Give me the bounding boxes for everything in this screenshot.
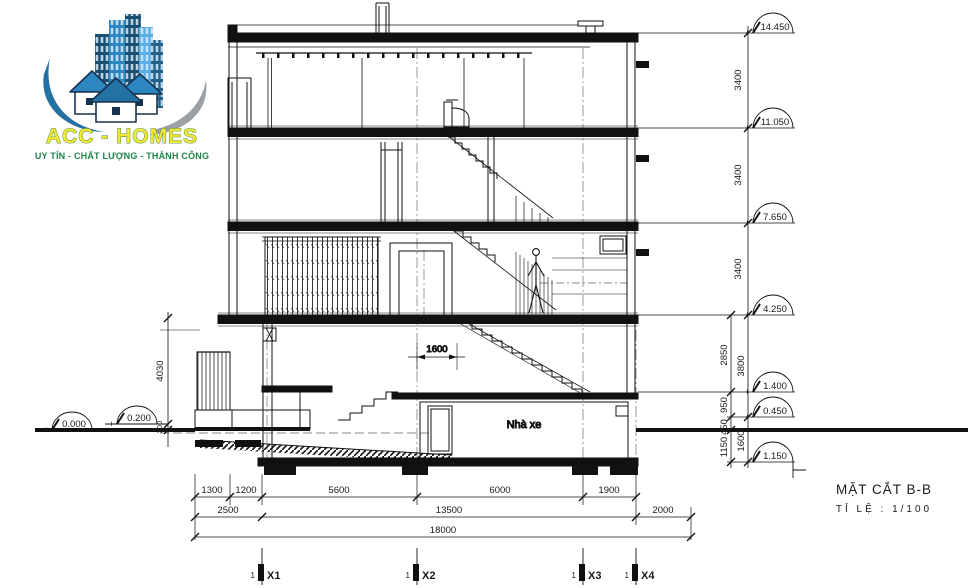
svg-text:1: 1	[251, 571, 256, 580]
svg-text:950: 950	[719, 397, 730, 413]
svg-text:1600: 1600	[736, 430, 747, 451]
svg-text:+: +	[744, 387, 750, 398]
drawing-scale: TỈ LỆ : 1/100	[836, 502, 932, 515]
level-marker: - 1.150	[747, 442, 793, 468]
slogan-text: UY TÍN - CHẤT LƯỢNG - THÀNH CÔNG	[35, 150, 209, 161]
building-section: 1600 Nhà xe	[35, 3, 968, 478]
svg-text:+: +	[744, 412, 750, 423]
logo: ACC - HOMES UY TÍN - CHẤT LƯỢNG - THÀNH …	[35, 14, 209, 161]
axis-label-x1: 1 X1	[251, 570, 281, 582]
svg-text:4.250: 4.250	[763, 304, 787, 315]
axis-label-x2: 1 X2	[406, 570, 436, 582]
axis-label-x4: 1 X4	[625, 570, 656, 582]
drawing-title-block: MẶT CẮT B-B TỈ LỆ : 1/100	[836, 482, 932, 515]
svg-text:6000: 6000	[489, 485, 510, 496]
svg-text:X3: X3	[588, 570, 601, 582]
svg-text:2500: 2500	[217, 505, 238, 516]
level-marker: + 11.050	[744, 108, 793, 134]
svg-text:+: +	[744, 218, 750, 229]
svg-text:1600: 1600	[426, 344, 447, 355]
level-marker: + 1.400	[744, 372, 793, 398]
left-dimension: 4030 200	[155, 312, 200, 447]
svg-text:450: 450	[719, 419, 730, 435]
section-drawing: ACC - HOMES UY TÍN - CHẤT LƯỢNG - THÀNH …	[0, 0, 970, 588]
svg-text:13500: 13500	[436, 505, 462, 516]
svg-text:+: +	[744, 310, 750, 321]
svg-text:X2: X2	[422, 570, 435, 582]
svg-text:2850: 2850	[719, 344, 730, 365]
svg-text:4030: 4030	[155, 360, 166, 381]
svg-text:1900: 1900	[598, 485, 619, 496]
svg-text:11.050: 11.050	[761, 117, 789, 128]
svg-text:14.450: 14.450	[760, 22, 789, 33]
blueprint-page: ACC - HOMES UY TÍN - CHẤT LƯỢNG - THÀNH …	[0, 0, 970, 588]
svg-text:1: 1	[625, 571, 630, 580]
svg-text:3400: 3400	[733, 258, 744, 279]
svg-text:1.400: 1.400	[763, 381, 787, 392]
bottom-dimensions: 1300 1200 5600 6000 1900 2500 13500 2000…	[191, 474, 695, 541]
svg-text:1: 1	[572, 571, 577, 580]
svg-text:0.450: 0.450	[763, 406, 787, 417]
stair-dimension: 1600	[408, 343, 465, 370]
level-marker: + 0.000	[35, 412, 100, 436]
svg-text:3400: 3400	[733, 164, 744, 185]
garage-label: Nhà xe	[507, 419, 542, 431]
brand-text: ACC - HOMES	[46, 125, 198, 148]
svg-text:200: 200	[155, 421, 164, 434]
svg-text:+: +	[744, 123, 750, 134]
axis-label-x3: 1 X3	[572, 570, 602, 582]
svg-text:1150: 1150	[719, 437, 730, 457]
svg-text:18000: 18000	[430, 525, 456, 536]
svg-text:0.200: 0.200	[127, 413, 151, 424]
svg-text:1.150: 1.150	[763, 451, 787, 462]
svg-text:+: +	[43, 425, 49, 436]
level-marker: + 4.250	[744, 295, 793, 321]
svg-text:X1: X1	[267, 570, 280, 582]
svg-text:7.650: 7.650	[763, 212, 787, 223]
level-marker: + 0.450	[744, 397, 793, 423]
svg-text:5600: 5600	[328, 485, 349, 496]
svg-text:1: 1	[406, 571, 411, 580]
svg-text:-: -	[747, 457, 750, 468]
svg-text:2000: 2000	[652, 505, 673, 516]
toilet-icon	[444, 100, 469, 127]
svg-text:3800: 3800	[736, 355, 747, 376]
svg-text:1200: 1200	[235, 485, 256, 496]
drawing-title: MẶT CẮT B-B	[836, 482, 932, 497]
svg-text:X4: X4	[641, 570, 655, 582]
svg-text:3400: 3400	[733, 69, 744, 90]
axis-marks: 1 X1 1 X2 1 X3 1 X4	[251, 548, 656, 585]
level-marker: + 14.450	[744, 13, 793, 39]
right-dimensions: 3400 3400 3400 3800 1600 2850 950 450 11…	[719, 26, 752, 468]
level-marker: + 7.650	[744, 203, 793, 229]
svg-text:+: +	[744, 28, 750, 39]
svg-text:+: +	[108, 419, 114, 430]
svg-text:0.000: 0.000	[62, 419, 86, 430]
svg-text:1300: 1300	[201, 485, 222, 496]
